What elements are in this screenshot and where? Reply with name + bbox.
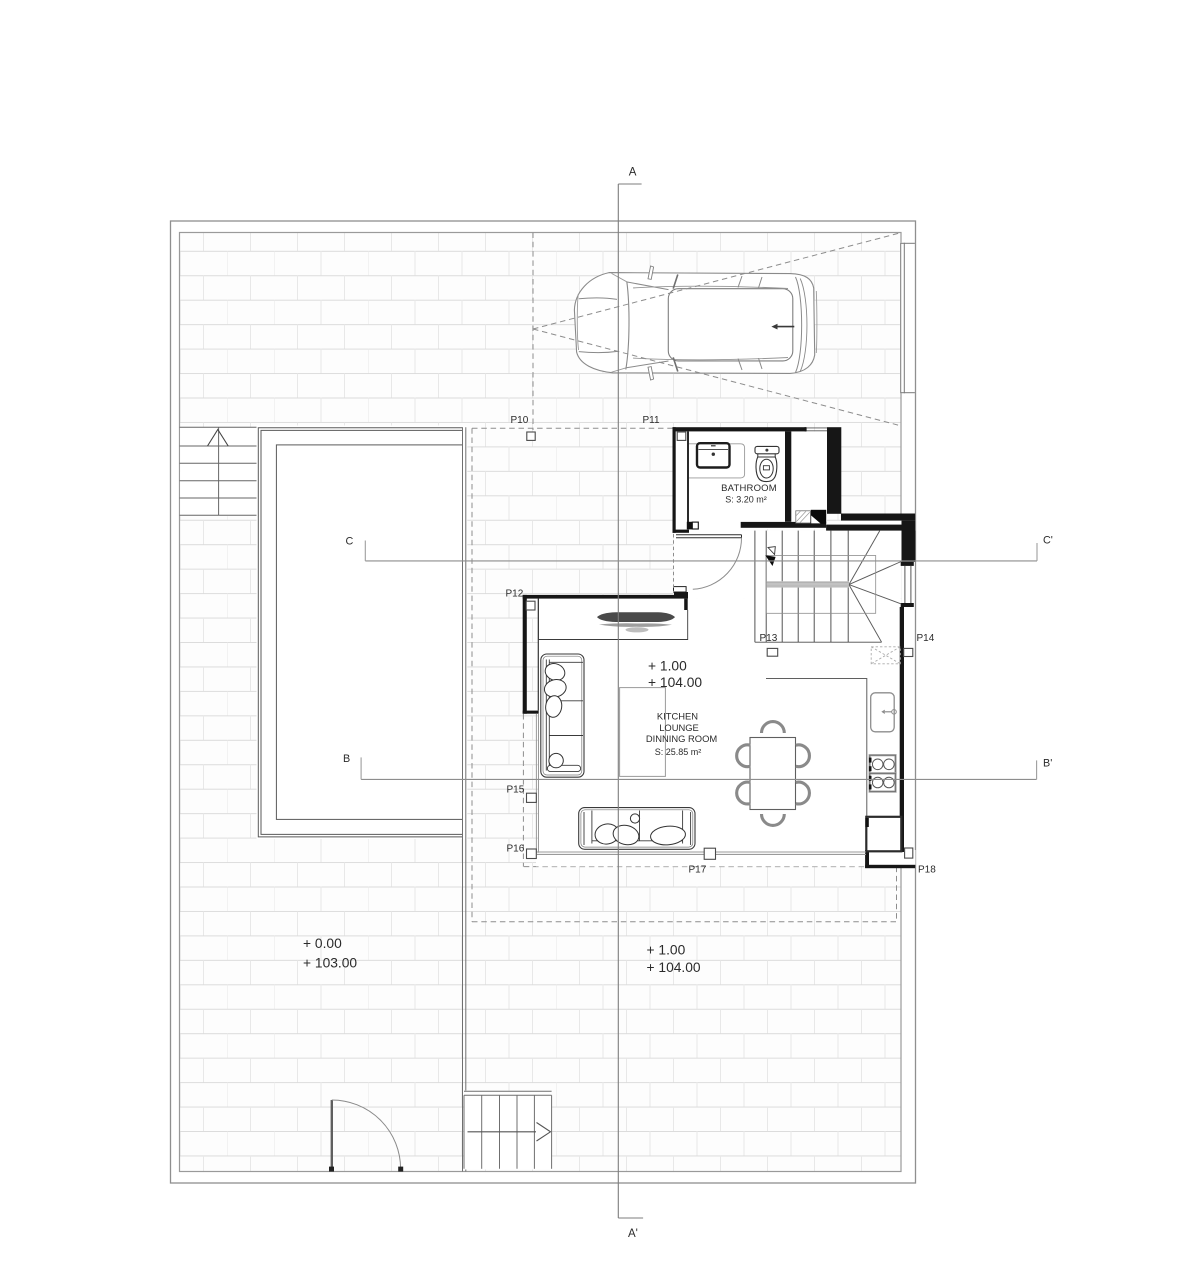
svg-text:+ 104.00: + 104.00 (647, 960, 701, 975)
svg-text:C': C' (1043, 535, 1053, 547)
svg-text:P17: P17 (689, 865, 707, 876)
svg-text:+ 1.00: + 1.00 (647, 943, 686, 958)
svg-text:LOUNGE: LOUNGE (659, 722, 699, 733)
svg-text:+ 103.00: + 103.00 (303, 956, 357, 971)
svg-text:+ 104.00: + 104.00 (648, 675, 702, 690)
svg-text:+ 0.00: + 0.00 (303, 936, 342, 951)
svg-text:BATHROOM: BATHROOM (721, 483, 777, 494)
svg-text:A': A' (628, 1228, 638, 1240)
svg-text:P13: P13 (760, 633, 778, 644)
svg-text:+ 1.00: + 1.00 (648, 659, 687, 674)
svg-text:C: C (346, 536, 354, 548)
svg-text:P18: P18 (918, 865, 936, 876)
svg-text:P14: P14 (917, 633, 935, 644)
svg-text:P10: P10 (511, 415, 529, 426)
svg-text:S: 25.85 m²: S: 25.85 m² (655, 747, 702, 757)
svg-text:P11: P11 (643, 415, 660, 426)
svg-text:P12: P12 (506, 589, 524, 600)
svg-text:KITCHEN: KITCHEN (657, 711, 698, 722)
svg-text:B': B' (1043, 758, 1052, 770)
svg-text:P15: P15 (507, 785, 525, 796)
svg-text:B: B (343, 753, 350, 765)
svg-text:S: 3.20 m²: S: 3.20 m² (725, 494, 767, 504)
svg-text:P16: P16 (507, 844, 525, 855)
svg-text:A: A (629, 167, 637, 179)
svg-text:DINNING ROOM: DINNING ROOM (646, 733, 718, 744)
